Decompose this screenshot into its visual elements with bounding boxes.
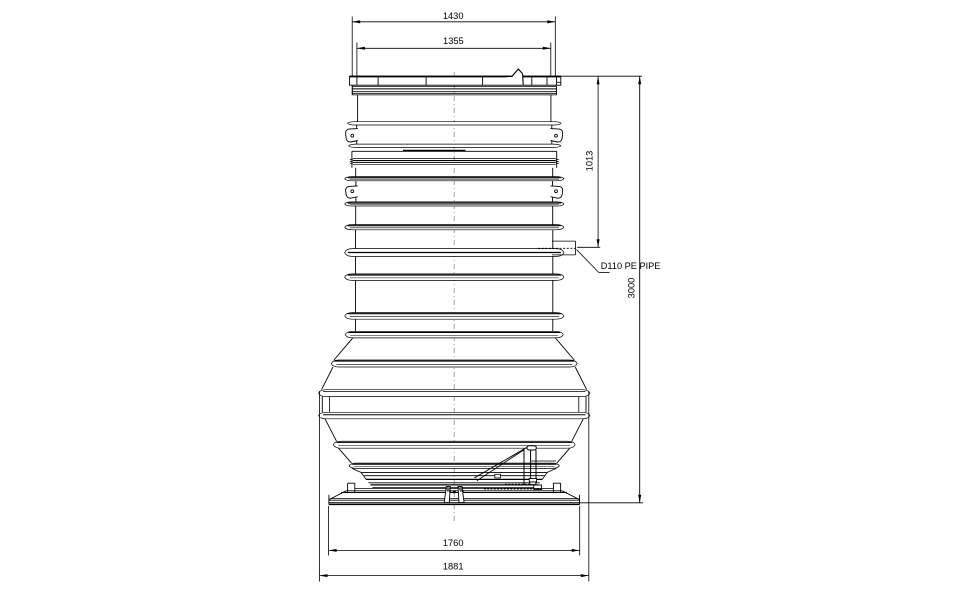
svg-text:1355: 1355 [443,36,464,46]
svg-text:1881: 1881 [443,562,464,572]
svg-text:1013: 1013 [584,151,594,172]
svg-text:D110 PE PIPE: D110 PE PIPE [601,261,661,271]
svg-text:1430: 1430 [443,11,464,21]
svg-text:3000: 3000 [626,278,636,299]
svg-text:1760: 1760 [443,538,464,548]
